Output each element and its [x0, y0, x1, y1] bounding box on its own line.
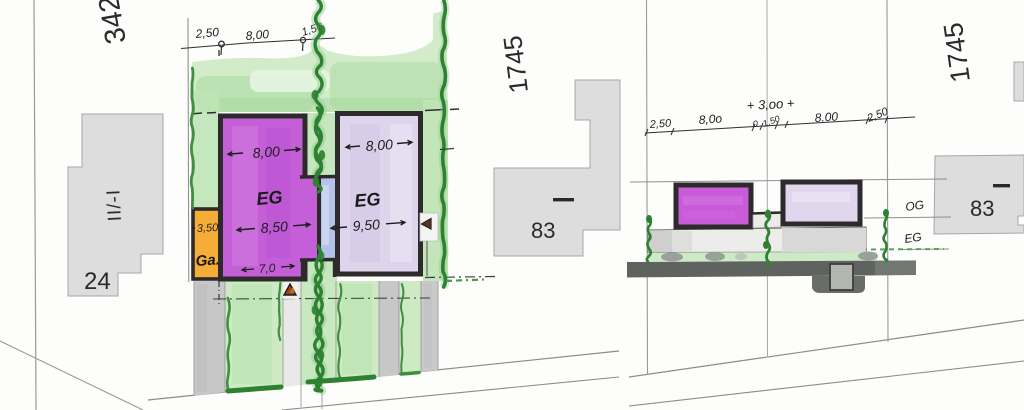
svg-text:83: 83 — [970, 196, 994, 221]
svg-text:2,50: 2,50 — [648, 117, 672, 131]
svg-text:3,50: 3,50 — [197, 222, 220, 235]
svg-text:8,00: 8,00 — [365, 136, 394, 154]
svg-text:8,0o: 8,0o — [698, 111, 723, 127]
svg-text:OG: OG — [904, 198, 924, 214]
svg-text:9,50: 9,50 — [352, 216, 381, 234]
svg-text:8,00: 8,00 — [245, 27, 270, 43]
svg-text:83: 83 — [531, 218, 555, 243]
svg-text:8,00: 8,00 — [252, 143, 281, 161]
svg-text:EG: EG — [903, 230, 922, 246]
svg-text:8,50: 8,50 — [260, 218, 289, 236]
svg-text:Ga.: Ga. — [195, 251, 220, 270]
svg-text:2,50: 2,50 — [194, 25, 220, 41]
svg-text:EG: EG — [256, 187, 284, 209]
svg-text:24: 24 — [84, 268, 111, 295]
svg-text:EG: EG — [354, 189, 382, 211]
svg-text:7,0: 7,0 — [258, 261, 276, 276]
svg-text:II/-I: II/-I — [103, 188, 126, 222]
svg-text:0: 0 — [752, 119, 758, 129]
svg-text:+ 3,oo +: + 3,oo + — [746, 95, 795, 112]
svg-text:8.00: 8.00 — [814, 109, 839, 125]
